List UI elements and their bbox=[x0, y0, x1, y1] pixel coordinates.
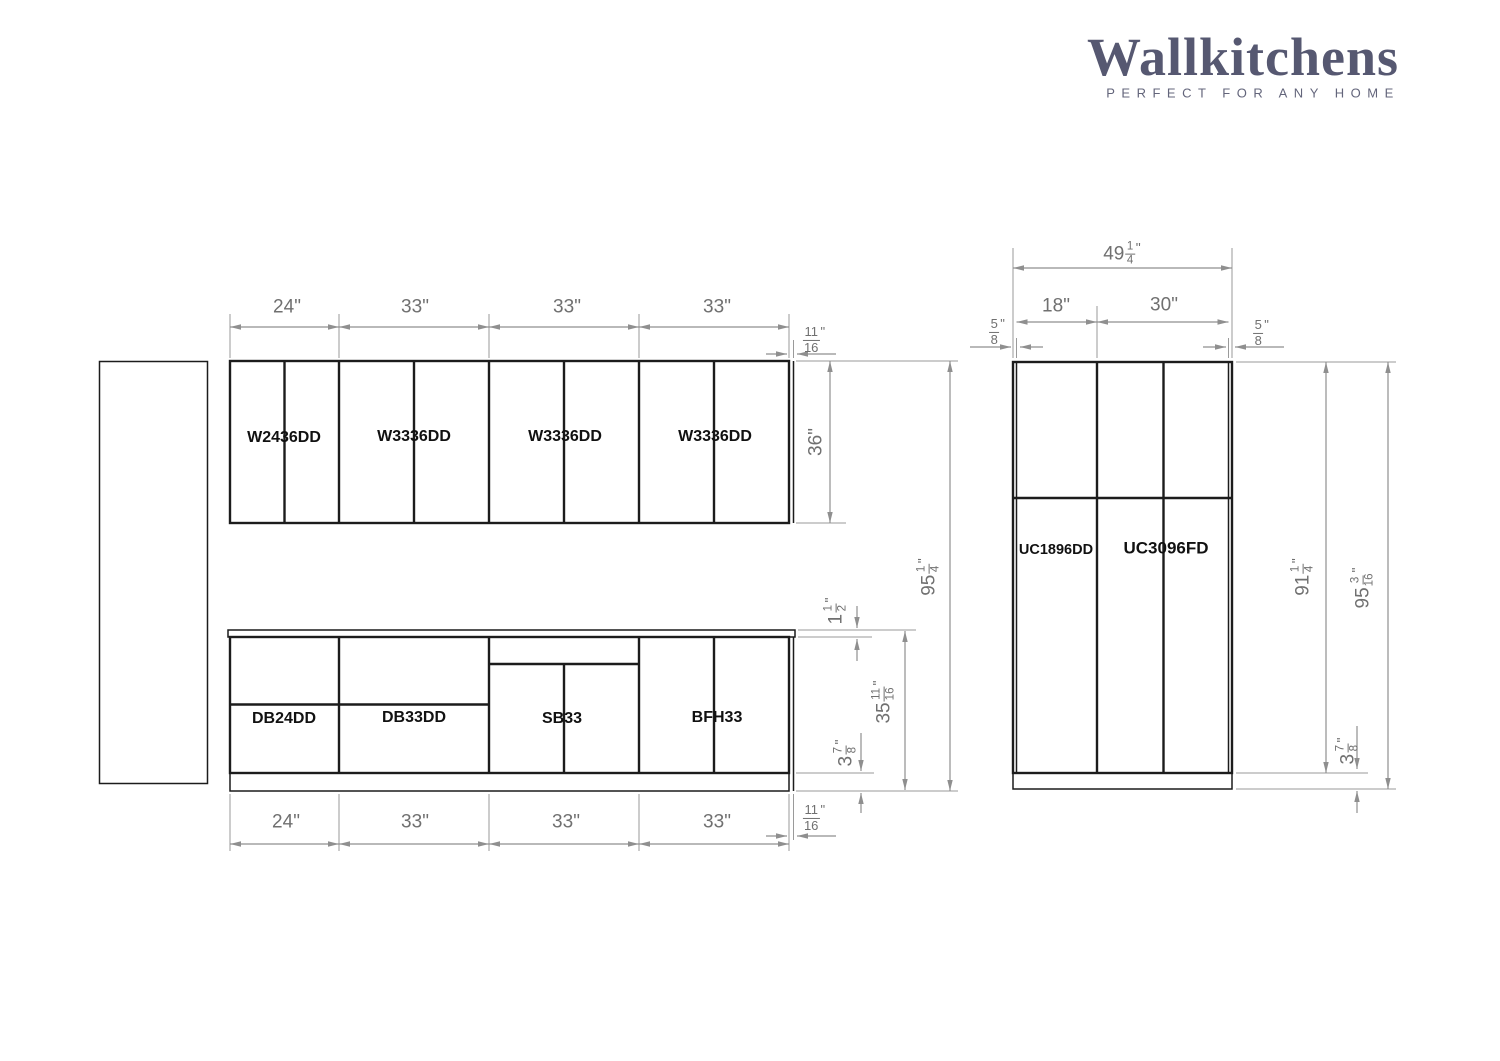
base-cabinet-label-3: SB33 bbox=[542, 711, 582, 727]
tall-cabinet-label-2: UC3096FD bbox=[1123, 540, 1208, 557]
base-cabinet-label-1: DB24DD bbox=[252, 711, 316, 727]
dim-tall-overall-width: 49 14 " bbox=[1103, 241, 1141, 268]
wall-cabinet-label-1: W2436DD bbox=[247, 430, 321, 446]
tall-cabinet-label-1: UC1896DD bbox=[1019, 543, 1093, 558]
dim-total-height-left: 95 14 " bbox=[916, 558, 943, 596]
wall-cabinet-label-4: W3336DD bbox=[678, 429, 752, 445]
dim-toe-kick-left: 3 78 " bbox=[833, 740, 860, 767]
dim-top-width-3: 33" bbox=[553, 298, 581, 317]
brand-tagline: PERFECT FOR ANY HOME bbox=[1106, 86, 1400, 101]
dim-wall-height: 36" bbox=[807, 428, 826, 456]
dim-top-filler: 1116 " bbox=[803, 325, 825, 355]
base-cabinet-label-4: BFH33 bbox=[692, 710, 743, 726]
brand-logo: Wallkitchens bbox=[1087, 26, 1399, 88]
dim-top-width-1: 24" bbox=[273, 298, 301, 317]
dim-base-height: 35 1116 " bbox=[871, 680, 898, 723]
dim-top-width-4: 33" bbox=[703, 298, 731, 317]
dim-bottom-width-4: 33" bbox=[703, 813, 731, 832]
dim-bottom-filler: 1116 " bbox=[803, 803, 825, 833]
left-tall-panel bbox=[100, 362, 208, 784]
kitchen-elevation-page: Wallkitchens PERFECT FOR ANY HOME W2436D… bbox=[0, 0, 1500, 1061]
base-cabinet-label-2: DB33DD bbox=[382, 710, 446, 726]
dim-tall-cabinet-height: 91 14 " bbox=[1290, 558, 1317, 596]
dim-tall-column-2: 30" bbox=[1150, 296, 1178, 315]
dim-tall-right-filler: 58 " bbox=[1253, 318, 1269, 348]
dim-bottom-width-2: 33" bbox=[401, 813, 429, 832]
dim-counter-thickness: 1 12 " bbox=[823, 598, 850, 625]
tall-cabinet-unit bbox=[1013, 362, 1232, 789]
dim-bottom-width-3: 33" bbox=[552, 813, 580, 832]
dim-bottom-width-1: 24" bbox=[272, 813, 300, 832]
wall-cabinet-label-3: W3336DD bbox=[528, 429, 602, 445]
dim-tall-column-1: 18" bbox=[1042, 297, 1070, 316]
elevation-drawing bbox=[0, 0, 1500, 1061]
dim-top-width-2: 33" bbox=[401, 298, 429, 317]
wall-cabinet-label-2: W3336DD bbox=[377, 429, 451, 445]
dim-toe-kick-right: 3 78 " bbox=[1335, 738, 1362, 765]
dim-tall-total-height: 95 316 " bbox=[1350, 568, 1377, 609]
dim-tall-left-filler: 58 " bbox=[989, 317, 1005, 347]
